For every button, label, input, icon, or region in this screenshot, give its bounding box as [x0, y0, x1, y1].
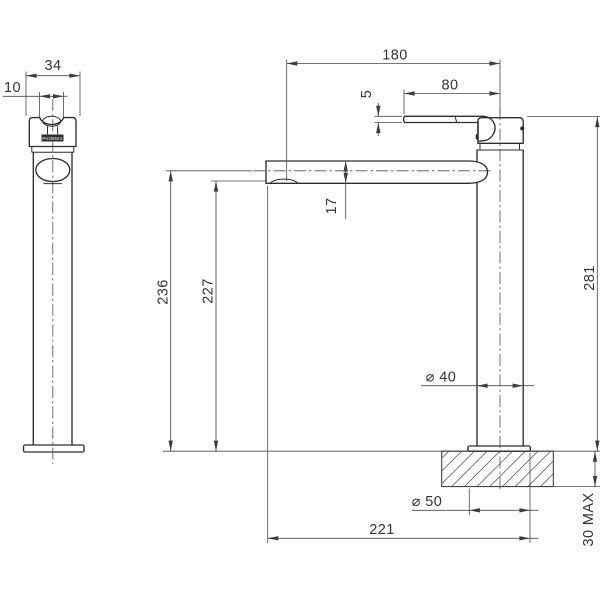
lever-hub	[478, 116, 495, 143]
handle-lever	[404, 116, 495, 143]
dimension-227: 227	[201, 181, 268, 451]
dimension-dia50: ⌀ 50	[412, 453, 539, 543]
drawing-canvas: PHOENIX	[0, 0, 600, 600]
dim-label-dia50: ⌀ 50	[412, 494, 443, 510]
dimension-80: 80	[404, 78, 500, 115]
dimension-10: 10	[3, 80, 68, 117]
front-base-flange	[24, 445, 85, 452]
lever-joint-line	[455, 116, 457, 122]
dim-label-10: 10	[4, 80, 21, 96]
dimension-30max: 30 MAX	[581, 451, 597, 546]
dim-label-30max: 30 MAX	[581, 493, 597, 547]
dim-label-dia40: ⌀ 40	[426, 370, 457, 386]
dim-label-236: 236	[156, 279, 172, 304]
dimension-5: 5	[359, 90, 402, 136]
dim-label-221: 221	[369, 522, 394, 538]
dimension-281: 281	[527, 117, 600, 452]
dim-label-281: 281	[582, 265, 598, 290]
dimensions: 34 10 180 80 5	[3, 48, 600, 547]
dim-label-180: 180	[382, 48, 407, 64]
side-view	[253, 108, 530, 492]
dim-label-80: 80	[442, 78, 459, 94]
tap-dimension-drawing: PHOENIX	[0, 0, 600, 600]
brand-logo: PHOENIX	[42, 135, 64, 142]
side-base-flange	[468, 446, 530, 451]
bench-hatch-lines	[442, 451, 554, 486]
set-screw-dot	[520, 126, 524, 130]
dim-label-227: 227	[201, 278, 217, 303]
dimension-221: 221	[268, 186, 539, 544]
dim-label-34: 34	[45, 58, 62, 74]
bench-section	[163, 451, 600, 486]
dimension-236: 236	[156, 171, 253, 451]
dim-label-17: 17	[324, 198, 340, 215]
dim-label-5: 5	[359, 90, 375, 98]
bench-hatch-box	[442, 451, 554, 486]
side-spout	[266, 161, 488, 183]
cartridge-cap	[478, 118, 523, 144]
brand-logo-text: PHOENIX	[42, 136, 62, 141]
dimension-17: 17	[324, 161, 346, 219]
front-view: PHOENIX	[24, 99, 85, 464]
